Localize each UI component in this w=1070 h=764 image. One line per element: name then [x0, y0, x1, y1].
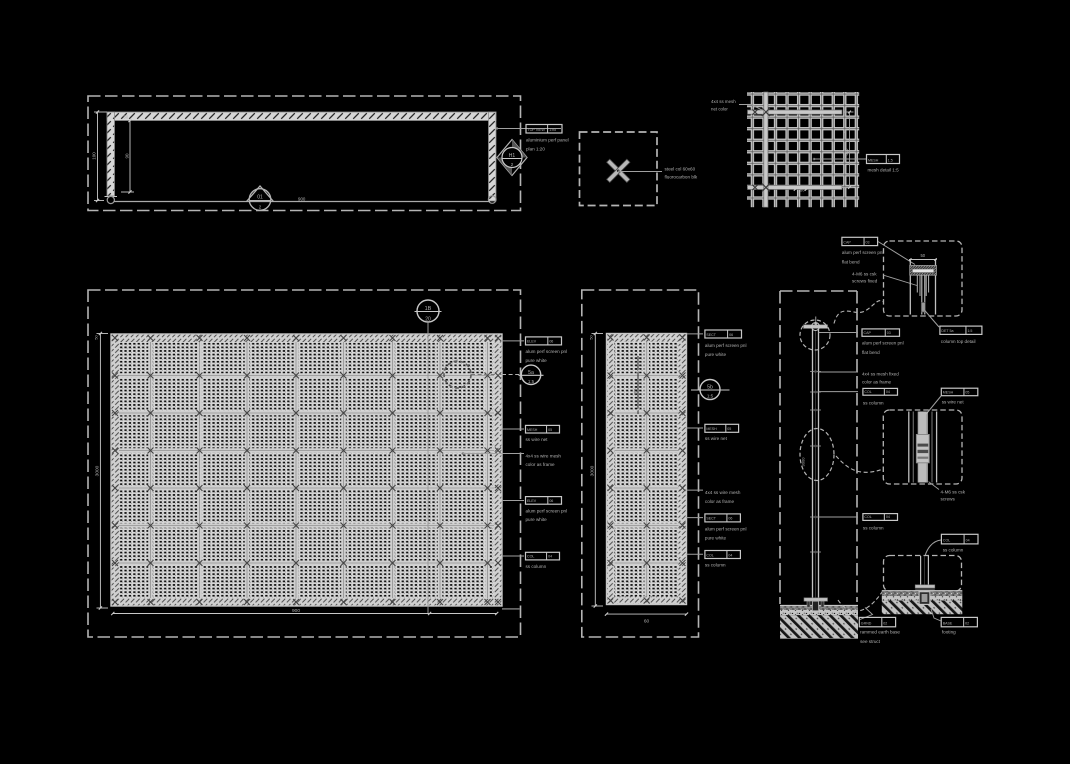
svg-text:06: 06	[549, 340, 553, 344]
svg-text:column top detail: column top detail	[941, 339, 976, 344]
svg-text:04: 04	[728, 553, 732, 557]
svg-text:05: 05	[548, 428, 552, 432]
svg-text:alum perf screen pnl: alum perf screen pnl	[705, 343, 747, 348]
svg-text:01: 01	[257, 195, 263, 201]
svg-text:06: 06	[729, 333, 733, 337]
svg-text:color as frame: color as frame	[526, 462, 556, 467]
svg-text:alum perf screen pnl: alum perf screen pnl	[862, 341, 904, 346]
svg-text:flat bend: flat bend	[842, 260, 860, 265]
svg-text:ELEV: ELEV	[527, 499, 537, 503]
svg-text:MESH: MESH	[943, 391, 954, 395]
svg-text:mesh detail 1:5: mesh detail 1:5	[868, 168, 900, 173]
svg-text:COL: COL	[943, 539, 950, 543]
svg-text:60: 60	[800, 188, 805, 193]
svg-text:CAP: CAP	[843, 240, 851, 244]
svg-text:screws: screws	[941, 497, 956, 502]
svg-text:3000: 3000	[590, 465, 596, 476]
svg-text:alum perf screen pnl: alum perf screen pnl	[526, 509, 568, 514]
svg-text:5b: 5b	[707, 385, 713, 391]
svg-text:color as frame: color as frame	[705, 499, 735, 504]
svg-text:rammed earth base: rammed earth base	[860, 630, 900, 635]
svg-text:TOP VIEW: TOP VIEW	[528, 128, 546, 132]
svg-text:COL: COL	[527, 555, 534, 559]
svg-text:COL: COL	[864, 390, 871, 394]
svg-text:MESH: MESH	[868, 158, 879, 162]
svg-text:aluminium perf panel: aluminium perf panel	[526, 138, 569, 143]
svg-text:ss column: ss column	[526, 564, 547, 569]
svg-text:1:5: 1:5	[707, 394, 714, 399]
svg-text:600: 600	[844, 148, 849, 156]
svg-text:50: 50	[590, 335, 594, 339]
svg-text:DET 5a: DET 5a	[941, 329, 953, 333]
svg-text:color as frame: color as frame	[862, 380, 892, 385]
svg-text:900: 900	[298, 197, 306, 202]
svg-text:pure white: pure white	[705, 352, 727, 357]
svg-text:plan 1:20: plan 1:20	[526, 147, 545, 152]
svg-text:100: 100	[92, 152, 97, 160]
svg-text:BASE: BASE	[943, 622, 953, 626]
svg-text:04: 04	[886, 390, 890, 394]
svg-text:flat bend: flat bend	[862, 350, 880, 355]
svg-text:4x4 ss mesh fixed: 4x4 ss mesh fixed	[862, 372, 899, 377]
svg-text:alum perf screen pnl: alum perf screen pnl	[526, 349, 568, 354]
svg-text:4x4 ss mesh: 4x4 ss mesh	[711, 99, 736, 104]
svg-text:06: 06	[728, 517, 732, 521]
svg-text:ss column: ss column	[943, 548, 964, 553]
svg-text:03: 03	[866, 240, 870, 244]
svg-text:1B: 1B	[425, 306, 432, 312]
svg-text:50: 50	[920, 253, 925, 258]
svg-text:4x4 ss wire mesh: 4x4 ss wire mesh	[705, 490, 741, 495]
svg-text:COL: COL	[706, 553, 713, 557]
svg-text:4-M6 ss csk: 4-M6 ss csk	[941, 490, 966, 495]
svg-text:1:5: 1:5	[888, 158, 893, 162]
svg-text:ss wire net: ss wire net	[942, 400, 965, 405]
svg-text:1:5: 1:5	[967, 329, 972, 333]
svg-text:03: 03	[887, 331, 891, 335]
svg-text:steel col 60x60: steel col 60x60	[665, 167, 696, 172]
svg-text:MESH: MESH	[706, 427, 717, 431]
svg-text:60: 60	[844, 129, 848, 133]
svg-text:4-M6 ss csk: 4-M6 ss csk	[852, 272, 877, 277]
svg-text:4x4 ss wire mesh: 4x4 ss wire mesh	[526, 454, 562, 459]
svg-text:1:5: 1:5	[528, 379, 535, 384]
svg-text:footing: footing	[942, 630, 956, 635]
svg-text:06: 06	[549, 499, 553, 503]
svg-text:CAP: CAP	[864, 331, 872, 335]
svg-text:SECT: SECT	[706, 517, 716, 521]
svg-text:05: 05	[727, 427, 731, 431]
svg-text:20: 20	[425, 317, 431, 323]
svg-text:pure white: pure white	[705, 536, 727, 541]
svg-text:net color: net color	[711, 107, 728, 112]
svg-text:5a: 5a	[528, 370, 534, 376]
svg-text:screws fixed: screws fixed	[852, 279, 878, 284]
svg-text:MESH: MESH	[527, 428, 538, 432]
svg-text:ss wire net: ss wire net	[705, 436, 728, 441]
svg-text:50: 50	[95, 335, 99, 339]
svg-text:H1: H1	[509, 153, 516, 159]
svg-text:fluorocarbon blk: fluorocarbon blk	[665, 175, 698, 180]
svg-text:90: 90	[125, 153, 130, 159]
svg-text:04: 04	[886, 515, 890, 519]
svg-text:ss wire net: ss wire net	[526, 437, 549, 442]
svg-text:pure white: pure white	[526, 358, 548, 363]
svg-text:ss column: ss column	[863, 401, 884, 406]
svg-text:05: 05	[965, 391, 969, 395]
svg-text:02: 02	[883, 622, 887, 626]
svg-text:50: 50	[124, 115, 129, 120]
svg-text:400: 400	[633, 388, 638, 395]
svg-text:04: 04	[966, 539, 970, 543]
svg-text:60: 60	[644, 619, 650, 625]
svg-text:ELEV: ELEV	[527, 340, 537, 344]
svg-text:3000: 3000	[95, 465, 101, 476]
svg-text:SECT: SECT	[706, 333, 716, 337]
svg-text:04: 04	[548, 555, 552, 559]
svg-text:pure white: pure white	[526, 517, 548, 522]
svg-text:alum perf screen pnl: alum perf screen pnl	[842, 250, 884, 255]
svg-text:ss column: ss column	[705, 563, 726, 568]
svg-text:1:no: 1:no	[549, 128, 556, 132]
svg-text:900: 900	[292, 608, 300, 614]
svg-text:COL: COL	[864, 515, 871, 519]
svg-text:ss column: ss column	[863, 526, 884, 531]
svg-text:GRND: GRND	[861, 622, 872, 626]
svg-text:alum perf screen pnl: alum perf screen pnl	[705, 527, 747, 532]
svg-text:02: 02	[965, 622, 969, 626]
svg-text:see struct: see struct	[860, 639, 881, 644]
